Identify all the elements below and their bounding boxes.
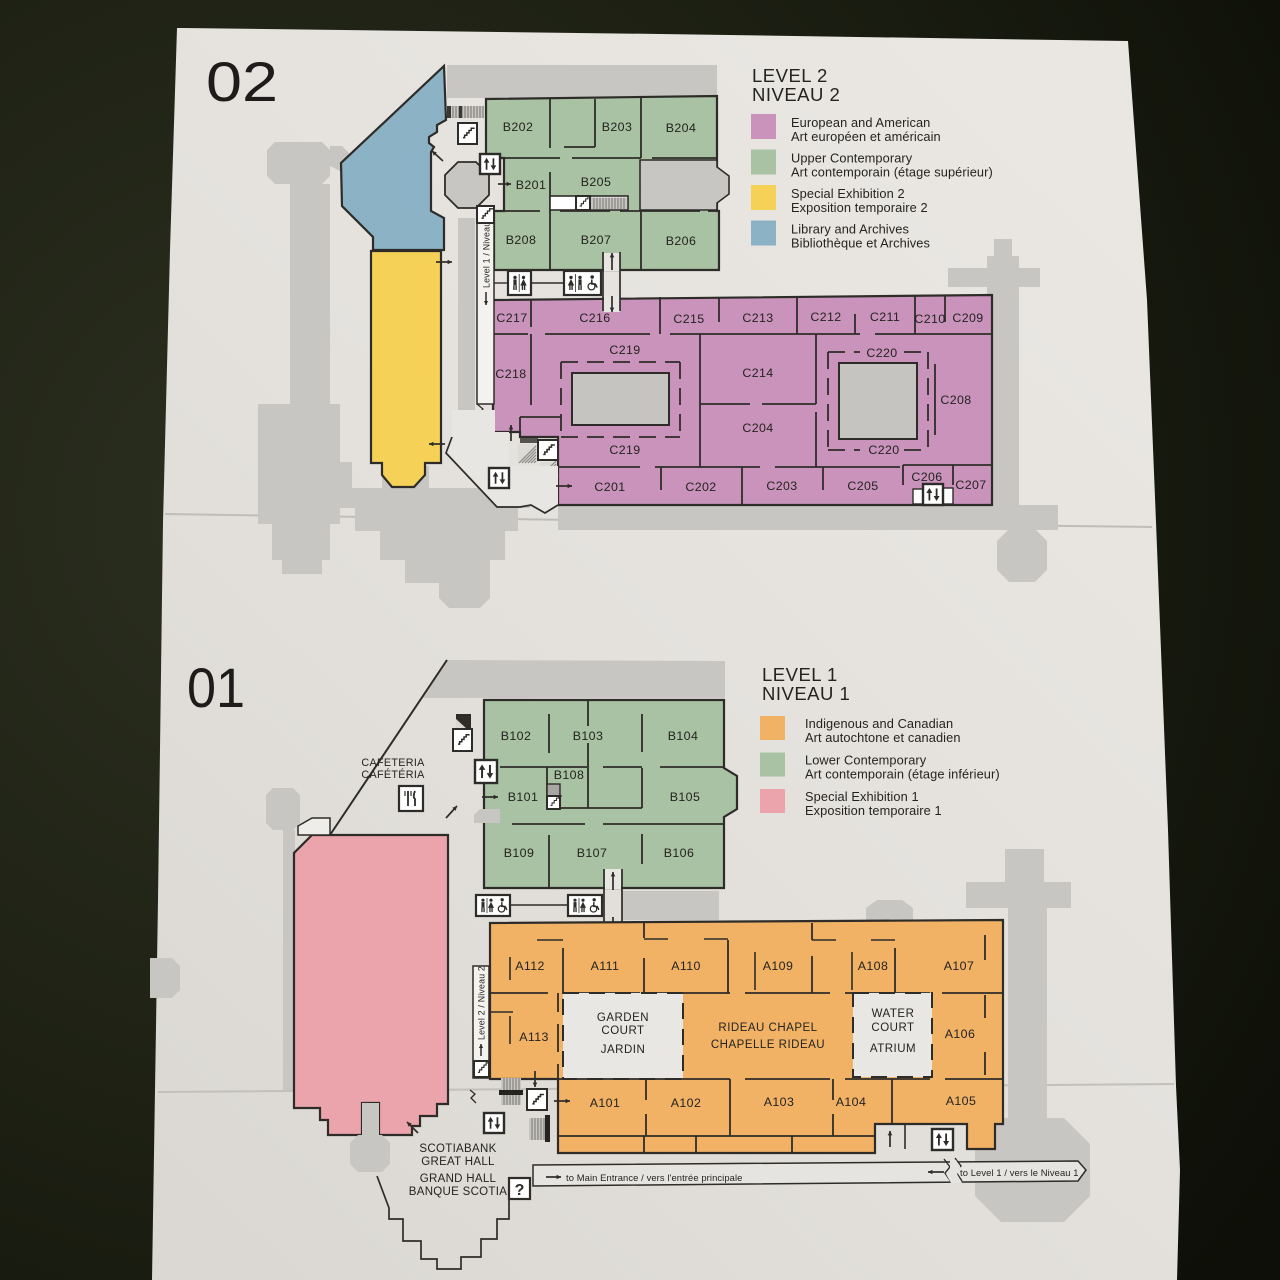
- svg-text:Library and Archives: Library and Archives: [791, 222, 909, 237]
- svg-text:LEVEL 2: LEVEL 2: [752, 65, 828, 86]
- svg-text:NIVEAU 2: NIVEAU 2: [752, 84, 840, 105]
- svg-text:A101: A101: [590, 1096, 621, 1110]
- svg-text:B101: B101: [508, 790, 539, 804]
- svg-text:A108: A108: [858, 959, 889, 973]
- svg-text:B201: B201: [516, 178, 547, 192]
- svg-text:NIVEAU 1: NIVEAU 1: [762, 683, 850, 704]
- svg-text:Art autochtone et canadien: Art autochtone et canadien: [805, 730, 961, 745]
- svg-text:GRAND HALL: GRAND HALL: [420, 1173, 497, 1185]
- svg-text:C210: C210: [914, 312, 945, 326]
- svg-text:B108: B108: [554, 768, 585, 782]
- svg-text:Art européen et américain: Art européen et américain: [791, 129, 941, 144]
- svg-text:C211: C211: [870, 310, 900, 324]
- svg-text:Level 2 / Niveau 2: Level 2 / Niveau 2: [477, 966, 487, 1040]
- svg-text:B208: B208: [506, 233, 537, 247]
- svg-text:JARDIN: JARDIN: [601, 1044, 646, 1056]
- svg-text:A110: A110: [671, 959, 701, 973]
- svg-text:01: 01: [187, 656, 245, 719]
- svg-text:RIDEAU CHAPEL: RIDEAU CHAPEL: [718, 1022, 817, 1034]
- svg-text:Special Exhibition 2: Special Exhibition 2: [791, 186, 905, 201]
- svg-text:02: 02: [206, 50, 278, 113]
- svg-text:GARDEN: GARDEN: [597, 1012, 649, 1024]
- svg-text:A106: A106: [945, 1027, 976, 1041]
- svg-text:A103: A103: [764, 1095, 795, 1109]
- svg-text:GREAT HALL: GREAT HALL: [421, 1156, 495, 1168]
- svg-text:C209: C209: [952, 311, 983, 325]
- svg-text:C204: C204: [742, 421, 773, 435]
- svg-text:C208: C208: [940, 393, 971, 407]
- svg-text:Exposition temporaire 2: Exposition temporaire 2: [791, 200, 928, 215]
- svg-text:B106: B106: [664, 846, 695, 860]
- svg-text:Indigenous and Canadian: Indigenous and Canadian: [805, 716, 953, 731]
- svg-text:C220: C220: [868, 443, 899, 457]
- svg-text:A109: A109: [763, 959, 794, 973]
- svg-text:to Main Entrance / vers l'entr: to Main Entrance / vers l'entrée princip…: [566, 1172, 743, 1183]
- svg-text:B206: B206: [666, 234, 697, 248]
- svg-text:B107: B107: [577, 846, 608, 860]
- svg-text:B102: B102: [501, 729, 532, 743]
- svg-text:Exposition temporaire 1: Exposition temporaire 1: [805, 803, 942, 818]
- svg-text:European and American: European and American: [791, 115, 930, 130]
- svg-text:to Level 1 / vers le Niveau 1: to Level 1 / vers le Niveau 1: [960, 1167, 1079, 1178]
- svg-text:C203: C203: [766, 479, 797, 493]
- svg-text:C206: C206: [911, 470, 942, 484]
- svg-text:BANQUE SCOTIA: BANQUE SCOTIA: [409, 1186, 508, 1198]
- svg-text:A107: A107: [944, 959, 975, 973]
- svg-text:CHAPELLE RIDEAU: CHAPELLE RIDEAU: [711, 1039, 825, 1051]
- svg-text:B203: B203: [602, 120, 633, 134]
- svg-text:SCOTIABANK: SCOTIABANK: [419, 1143, 496, 1155]
- svg-text:B104: B104: [668, 729, 699, 743]
- svg-text:Level 1 / Niveau 1: Level 1 / Niveau 1: [482, 214, 492, 288]
- svg-text:Bibliothèque et Archives: Bibliothèque et Archives: [791, 236, 930, 251]
- svg-text:C201: C201: [594, 480, 625, 494]
- svg-text:C214: C214: [742, 366, 773, 380]
- svg-text:C207: C207: [955, 478, 986, 492]
- svg-text:A113: A113: [519, 1030, 549, 1044]
- svg-text:A111: A111: [591, 959, 620, 973]
- svg-text:C217: C217: [496, 311, 527, 325]
- svg-text:B205: B205: [581, 175, 612, 189]
- svg-text:B109: B109: [504, 846, 535, 860]
- svg-text:A105: A105: [946, 1094, 977, 1108]
- svg-text:C212: C212: [810, 310, 841, 324]
- svg-text:A112: A112: [515, 959, 545, 973]
- svg-text:C218: C218: [495, 367, 526, 381]
- svg-text:?: ?: [515, 1182, 525, 1199]
- svg-text:B105: B105: [670, 790, 701, 804]
- svg-text:C202: C202: [685, 480, 716, 494]
- svg-text:ATRIUM: ATRIUM: [870, 1043, 916, 1055]
- svg-text:C220: C220: [866, 346, 897, 360]
- svg-text:C213: C213: [742, 311, 773, 325]
- svg-text:CAFETERIA: CAFETERIA: [361, 757, 425, 769]
- svg-text:C219: C219: [609, 343, 640, 357]
- svg-text:B204: B204: [666, 121, 697, 135]
- svg-text:Lower Contemporary: Lower Contemporary: [805, 753, 927, 768]
- svg-text:B103: B103: [573, 729, 604, 743]
- svg-text:C205: C205: [847, 479, 878, 493]
- svg-text:COURT: COURT: [871, 1022, 914, 1034]
- svg-text:LEVEL 1: LEVEL 1: [762, 664, 838, 685]
- svg-text:COURT: COURT: [601, 1025, 644, 1037]
- svg-text:C219: C219: [609, 443, 640, 457]
- svg-text:Art contemporain (étage supéri: Art contemporain (étage supérieur): [791, 165, 993, 180]
- svg-text:Special Exhibition 1: Special Exhibition 1: [805, 789, 919, 804]
- svg-text:WATER: WATER: [872, 1008, 915, 1020]
- svg-text:A102: A102: [671, 1096, 702, 1110]
- svg-text:B207: B207: [581, 233, 612, 247]
- svg-text:B202: B202: [503, 120, 534, 134]
- svg-text:CAFÉTÉRIA: CAFÉTÉRIA: [361, 768, 425, 781]
- svg-text:C215: C215: [673, 312, 704, 326]
- svg-text:A104: A104: [836, 1095, 867, 1109]
- svg-text:Upper Contemporary: Upper Contemporary: [791, 151, 913, 166]
- svg-text:C216: C216: [579, 311, 610, 325]
- svg-text:Art contemporain (étage inféri: Art contemporain (étage inférieur): [805, 767, 1000, 782]
